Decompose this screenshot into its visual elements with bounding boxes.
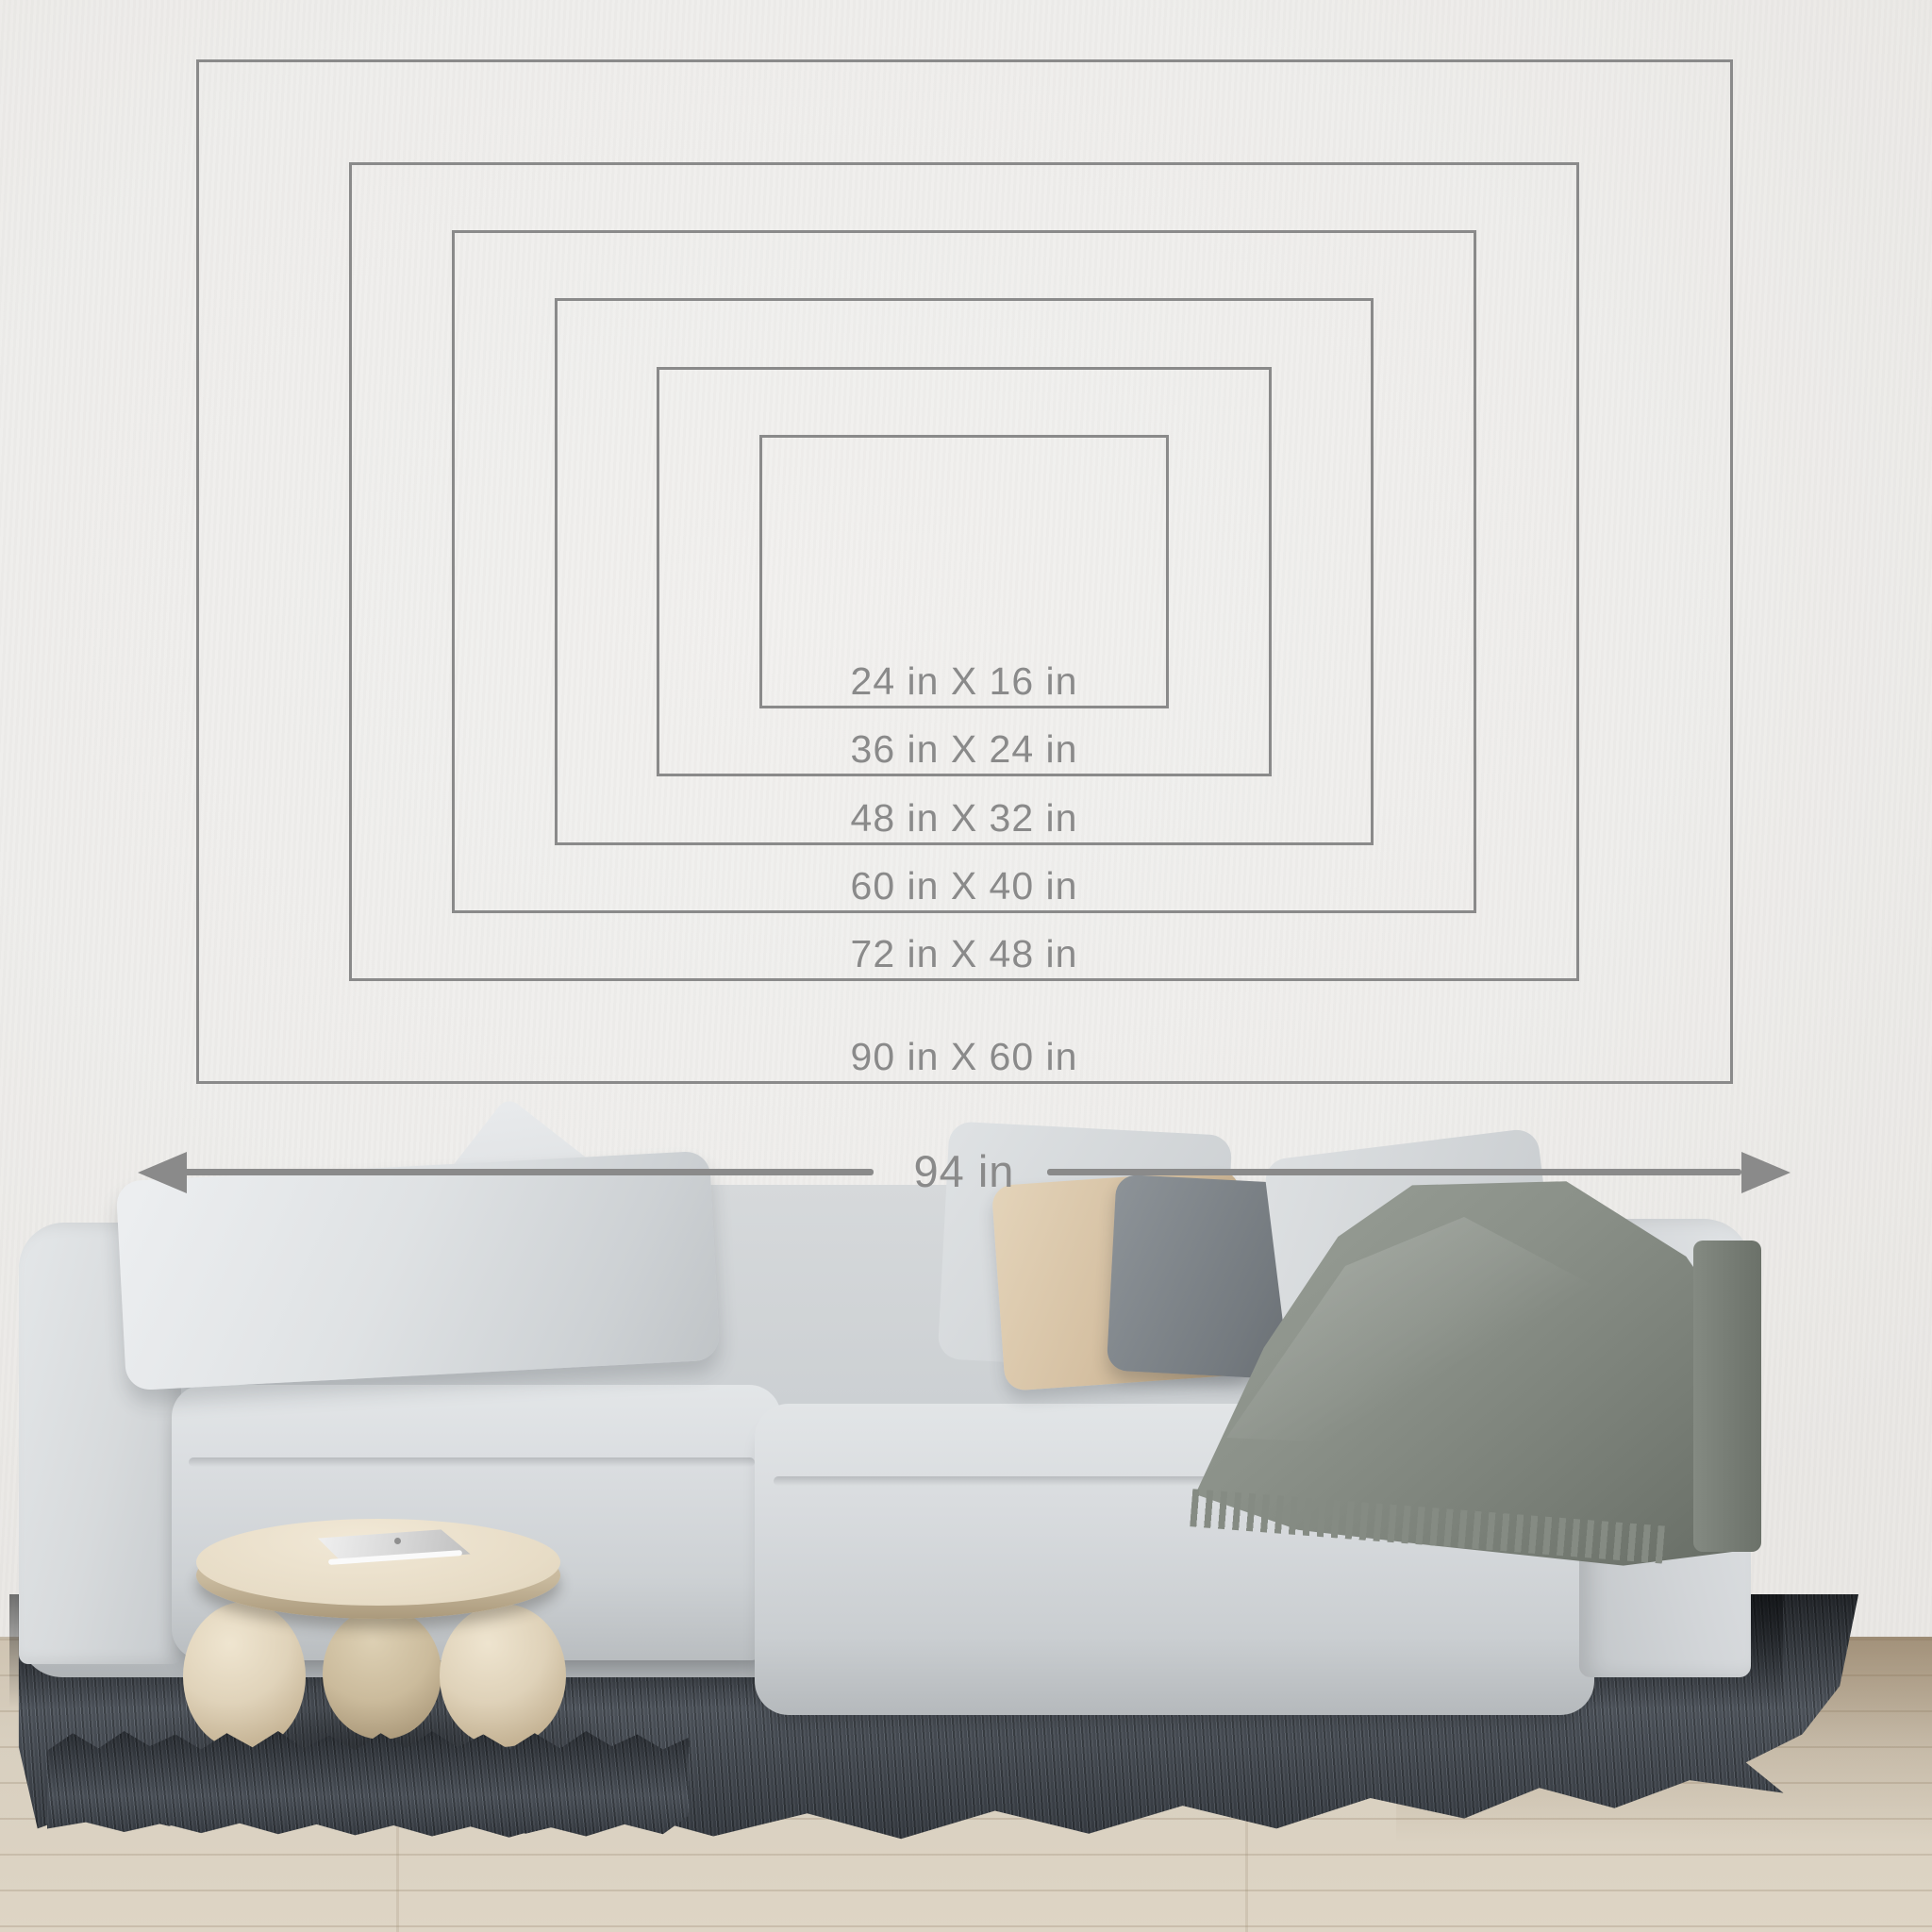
arrow-left-icon (138, 1152, 187, 1193)
size-overlay: 94 in 24 in X 16 in36 in X 24 in48 in X … (0, 0, 1932, 1932)
size-label-90x60: 90 in X 60 in (662, 1035, 1266, 1079)
size-chart-mockup: 94 in 24 in X 16 in36 in X 24 in48 in X … (0, 0, 1932, 1932)
arrow-right-icon (1741, 1152, 1790, 1193)
size-rect-90x60 (196, 59, 1733, 1084)
width-arrow-line-left (166, 1169, 874, 1175)
wall-width-label: 94 in (775, 1145, 1153, 1197)
